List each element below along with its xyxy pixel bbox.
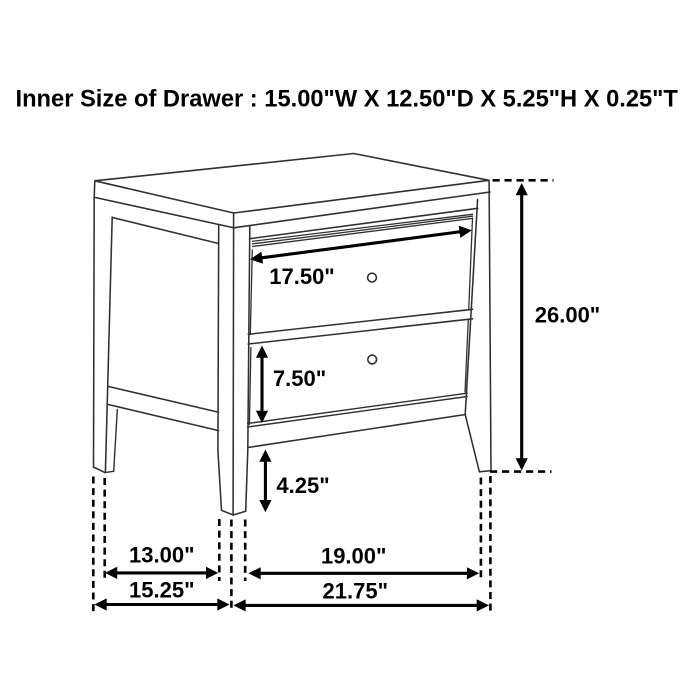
svg-text:19.00": 19.00"	[321, 544, 386, 569]
svg-text:21.75": 21.75"	[323, 579, 388, 604]
svg-text:Inner Size of Drawer : 15.00"W: Inner Size of Drawer : 15.00"W X 12.50"D…	[16, 86, 679, 112]
svg-text:15.25": 15.25"	[129, 578, 194, 603]
svg-text:17.50": 17.50"	[269, 264, 334, 289]
svg-text:7.50": 7.50"	[273, 366, 326, 391]
svg-text:26.00": 26.00"	[535, 303, 600, 328]
svg-text:13.00": 13.00"	[129, 543, 194, 568]
svg-text:4.25": 4.25"	[276, 473, 329, 498]
